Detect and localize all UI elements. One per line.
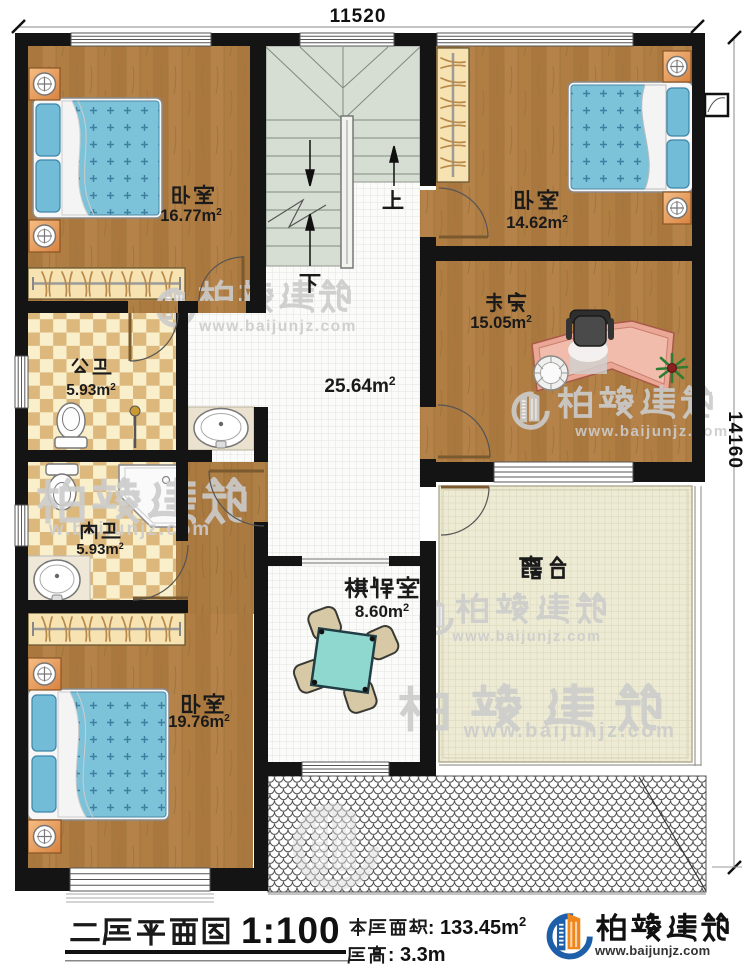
svg-text:www.baijunjz.com: www.baijunjz.com (198, 318, 357, 335)
svg-text:133.45m2: 133.45m2 (440, 914, 526, 939)
svg-text:www.baijunjz.com: www.baijunjz.com (463, 720, 677, 742)
svg-text:www.baijunjz.com: www.baijunjz.com (594, 943, 710, 958)
svg-text:11520: 11520 (330, 6, 387, 27)
svg-text:www.baijunjz.com: www.baijunjz.com (574, 423, 728, 440)
svg-text:16.77m2: 16.77m2 (160, 207, 222, 225)
svg-text:8.60m2: 8.60m2 (355, 602, 409, 621)
svg-text::: : (428, 918, 434, 939)
svg-text:15.05m2: 15.05m2 (470, 314, 532, 332)
svg-text:3.3m: 3.3m (400, 944, 446, 966)
svg-text:14.62m2: 14.62m2 (506, 214, 568, 232)
svg-text:19.76m2: 19.76m2 (168, 713, 230, 731)
svg-text:14160: 14160 (724, 411, 745, 469)
svg-text:25.64m2: 25.64m2 (324, 374, 395, 397)
svg-text:www.baijunjz.com: www.baijunjz.com (451, 629, 601, 645)
svg-text::: : (388, 945, 394, 966)
svg-text:5.93m2: 5.93m2 (66, 382, 116, 399)
svg-text:5.93m2: 5.93m2 (76, 541, 124, 558)
svg-text:1:100: 1:100 (241, 910, 341, 951)
